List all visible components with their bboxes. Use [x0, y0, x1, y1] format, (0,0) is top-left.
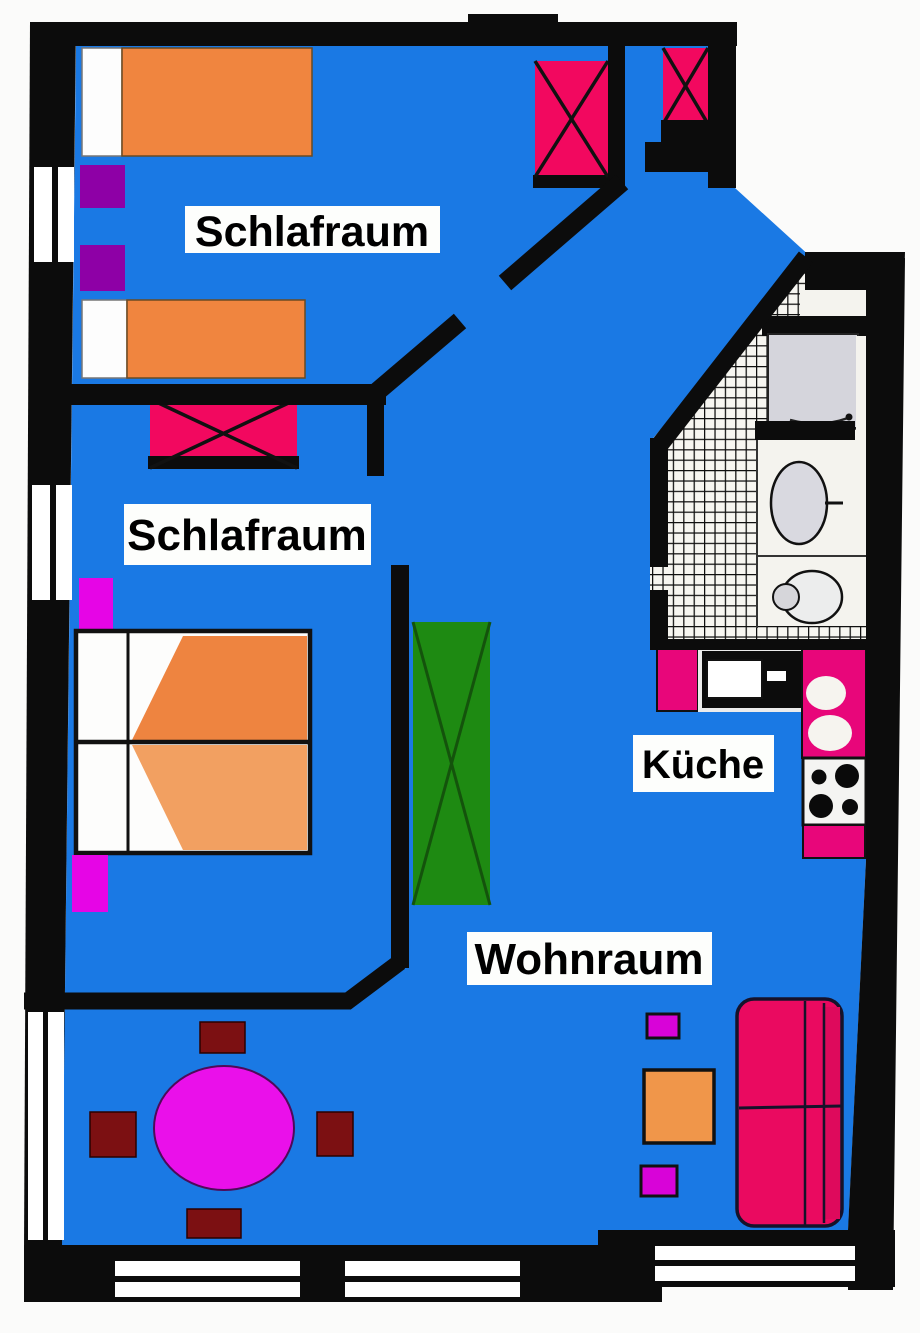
- svg-text:Wohnraum: Wohnraum: [475, 935, 704, 984]
- svg-text:Schlafraum: Schlafraum: [127, 511, 367, 560]
- svg-text:Küche: Küche: [642, 743, 764, 787]
- svg-text:Schlafraum: Schlafraum: [195, 208, 429, 256]
